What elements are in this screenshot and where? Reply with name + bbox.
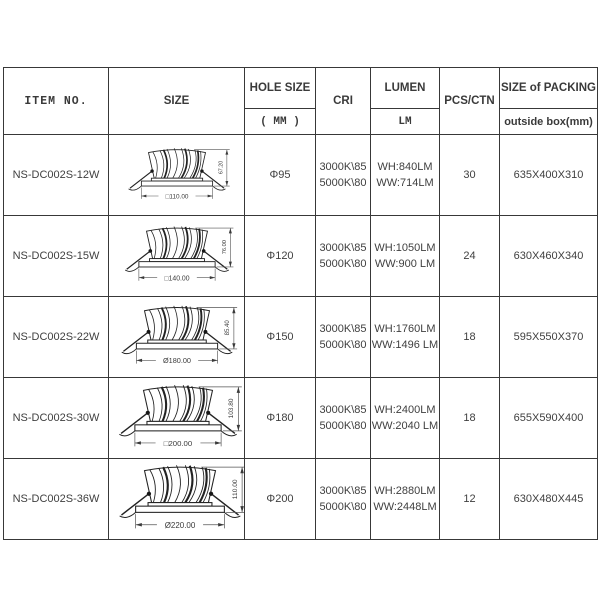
width-dimension-label: □140.00 [164,276,189,283]
hole-size-cell: Φ95 [245,135,316,216]
lumen-line-2: WW:2040 LM [371,418,439,435]
downlight-drawing: □140.00 76.00 [116,222,238,289]
downlight-drawing: □200.00 103.80 [109,380,245,456]
height-dimension-label: 110.00 [232,479,239,499]
width-dimension-label: □110.00 [165,193,188,200]
cri-cell: 3000K\85 5000K\80 [316,216,371,297]
cri-line-1: 3000K\85 [316,321,370,338]
lumen-cell: WH:1760LM WW:1496 LM [371,297,440,378]
cri-line-2: 5000K\80 [316,337,370,354]
cri-line-2: 5000K\80 [316,418,370,435]
header-lumen-unit: LM [371,109,440,135]
item-no-cell: NS-DC002S-36W [4,459,109,540]
table-row: NS-DC002S-12W [4,135,598,216]
lumen-line-2: WW:714LM [371,175,439,192]
cri-line-1: 3000K\85 [316,402,370,419]
width-dimension-label: □200.00 [164,439,192,448]
height-dimension-label: 76.00 [221,240,227,254]
pcs-ctn-cell: 24 [440,216,500,297]
packing-cell: 635X400X310 [500,135,598,216]
table-row: NS-DC002S-22W [4,297,598,378]
cri-cell: 3000K\85 5000K\80 [316,297,371,378]
lumen-line-1: WH:840LM [371,159,439,176]
item-no-cell: NS-DC002S-15W [4,216,109,297]
width-dimension-label: Ø180.00 [163,356,191,365]
pcs-ctn-cell: 18 [440,297,500,378]
header-hole-size-unit: ( MM ) [245,109,316,135]
table-row: NS-DC002S-15W [4,216,598,297]
cri-cell: 3000K\85 5000K\80 [316,135,371,216]
lumen-cell: WH:2880LM WW:2448LM [371,459,440,540]
packing-cell: 655X590X400 [500,378,598,459]
hole-size-cell: Φ200 [245,459,316,540]
item-no-cell: NS-DC002S-30W [4,378,109,459]
item-no-cell: NS-DC002S-12W [4,135,109,216]
cri-cell: 3000K\85 5000K\80 [316,378,371,459]
pcs-ctn-cell: 12 [440,459,500,540]
lumen-line-1: WH:2400LM [371,402,439,419]
size-drawing-cell: Ø180.00 85.40 [109,297,245,378]
downlight-drawing: Ø220.00 110.00 [109,460,245,538]
size-drawing-cell: □200.00 103.80 [109,378,245,459]
cri-line-2: 5000K\80 [316,256,370,273]
hole-size-cell: Φ120 [245,216,316,297]
size-drawing-cell: Ø220.00 110.00 [109,459,245,540]
pcs-ctn-cell: 30 [440,135,500,216]
cri-line-2: 5000K\80 [316,499,370,516]
size-drawing-cell: □110.00 67.20 [109,135,245,216]
cri-line-2: 5000K\80 [316,175,370,192]
hole-size-cell: Φ150 [245,297,316,378]
header-cri: CRI [316,68,371,135]
lumen-cell: WH:2400LM WW:2040 LM [371,378,440,459]
height-dimension-label: 67.20 [218,160,224,173]
lumen-line-1: WH:2880LM [371,483,439,500]
cri-cell: 3000K\85 5000K\80 [316,459,371,540]
product-spec-table: ITEM NO. SIZE HOLE SIZE CRI LUMEN PCS/CT… [3,67,598,540]
lumen-cell: WH:1050LM WW:900 LM [371,216,440,297]
table-row: NS-DC002S-30W [4,378,598,459]
downlight-drawing: □110.00 67.20 [120,144,234,207]
cri-line-1: 3000K\85 [316,483,370,500]
header-lumen: LUMEN [371,68,440,109]
packing-cell: 595X550X370 [500,297,598,378]
cri-line-1: 3000K\85 [316,240,370,257]
header-row-1: ITEM NO. SIZE HOLE SIZE CRI LUMEN PCS/CT… [4,68,598,109]
packing-cell: 630X460X340 [500,216,598,297]
width-dimension-label: Ø220.00 [165,521,196,530]
item-no-cell: NS-DC002S-22W [4,297,109,378]
downlight-drawing: Ø180.00 85.40 [112,301,242,373]
pcs-ctn-cell: 18 [440,378,500,459]
header-packing: SIZE of PACKING [500,68,598,109]
size-drawing-cell: □140.00 76.00 [109,216,245,297]
header-size: SIZE [109,68,245,135]
height-dimension-label: 85.40 [224,320,231,336]
lumen-cell: WH:840LM WW:714LM [371,135,440,216]
header-item-no: ITEM NO. [4,68,109,135]
cri-line-1: 3000K\85 [316,159,370,176]
height-dimension-label: 103.80 [228,398,235,418]
lumen-line-2: WW:900 LM [371,256,439,273]
lumen-line-2: WW:2448LM [371,499,439,516]
hole-size-cell: Φ180 [245,378,316,459]
spec-sheet-page: ITEM NO. SIZE HOLE SIZE CRI LUMEN PCS/CT… [0,0,600,600]
table-row: NS-DC002S-36W [4,459,598,540]
packing-cell: 630X480X445 [500,459,598,540]
lumen-line-1: WH:1760LM [371,321,439,338]
header-packing-unit: outside box(mm) [500,109,598,135]
lumen-line-2: WW:1496 LM [371,337,439,354]
header-hole-size: HOLE SIZE [245,68,316,109]
header-pcs-ctn: PCS/CTN [440,68,500,135]
lumen-line-1: WH:1050LM [371,240,439,257]
